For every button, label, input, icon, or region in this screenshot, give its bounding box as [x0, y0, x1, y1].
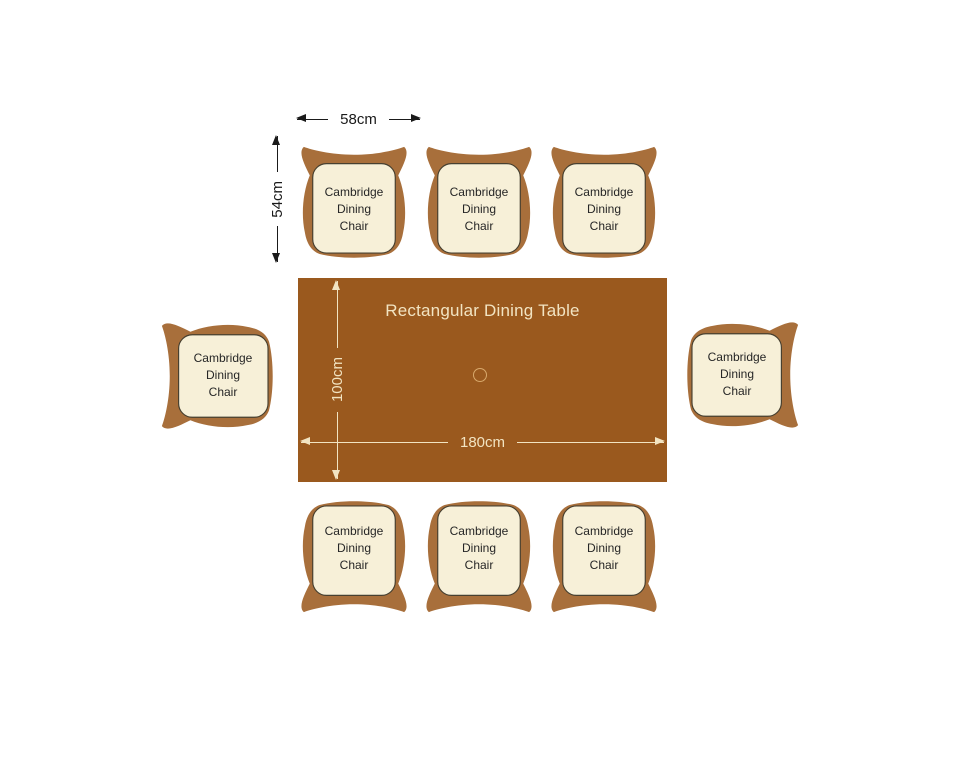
chair-name-line: Cambridge [547, 523, 661, 540]
chair-bottom-3: Cambridge Dining Chair [547, 500, 661, 622]
chair-right: Cambridge Dining Chair [686, 317, 808, 433]
chair-name-line: Dining [297, 201, 411, 218]
chair-name-line: Dining [422, 540, 536, 557]
chair-label: Cambridge Dining Chair [547, 184, 661, 235]
dining-set-diagram: 58cm 54cm Cambridge Dining Chair Cambrid… [0, 0, 960, 768]
chair-width-dimension: 58cm [297, 112, 420, 127]
chair-name-line: Chair [547, 557, 661, 574]
table-length-dimension: 180cm [301, 435, 664, 450]
chair-top-1: Cambridge Dining Chair [297, 137, 411, 259]
chair-label: Cambridge Dining Chair [547, 523, 661, 574]
chair-left: Cambridge Dining Chair [152, 318, 274, 434]
chair-width-label: 58cm [328, 111, 389, 128]
chair-name-line: Cambridge [422, 523, 536, 540]
chair-name-line: Dining [166, 367, 280, 384]
table-width-label: 100cm [329, 348, 346, 411]
chair-top-2: Cambridge Dining Chair [422, 137, 536, 259]
chair-name-line: Chair [422, 218, 536, 235]
chair-name-line: Dining [547, 540, 661, 557]
chair-name-line: Dining [422, 201, 536, 218]
chair-label: Cambridge Dining Chair [166, 350, 280, 401]
table-center-hole [473, 368, 487, 382]
chair-name-line: Dining [297, 540, 411, 557]
up-arrow [277, 136, 278, 172]
chair-name-line: Chair [297, 218, 411, 235]
chair-name-line: Cambridge [297, 184, 411, 201]
chair-name-line: Chair [680, 383, 794, 400]
chair-top-3: Cambridge Dining Chair [547, 137, 661, 259]
chair-depth-dimension: 54cm [269, 136, 285, 262]
chair-depth-label: 54cm [269, 172, 286, 227]
left-arrow [297, 119, 328, 120]
up-arrow [337, 281, 338, 348]
chair-label: Cambridge Dining Chair [297, 184, 411, 235]
chair-name-line: Chair [166, 384, 280, 401]
chair-name-line: Chair [547, 218, 661, 235]
chair-name-line: Dining [547, 201, 661, 218]
down-arrow [277, 226, 278, 262]
chair-name-line: Cambridge [680, 349, 794, 366]
chair-name-line: Cambridge [166, 350, 280, 367]
chair-name-line: Chair [297, 557, 411, 574]
right-arrow [389, 119, 420, 120]
left-arrow [301, 442, 448, 443]
chair-name-line: Cambridge [297, 523, 411, 540]
chair-name-line: Cambridge [547, 184, 661, 201]
chair-label: Cambridge Dining Chair [422, 523, 536, 574]
chair-bottom-1: Cambridge Dining Chair [297, 500, 411, 622]
table-length-label: 180cm [448, 434, 517, 451]
chair-label: Cambridge Dining Chair [422, 184, 536, 235]
right-arrow [517, 442, 664, 443]
dining-table: Rectangular Dining Table 100cm 180cm [298, 278, 667, 482]
chair-name-line: Dining [680, 366, 794, 383]
table-title: Rectangular Dining Table [298, 301, 667, 321]
chair-label: Cambridge Dining Chair [680, 349, 794, 400]
chair-label: Cambridge Dining Chair [297, 523, 411, 574]
chair-bottom-2: Cambridge Dining Chair [422, 500, 536, 622]
chair-name-line: Chair [422, 557, 536, 574]
chair-name-line: Cambridge [422, 184, 536, 201]
